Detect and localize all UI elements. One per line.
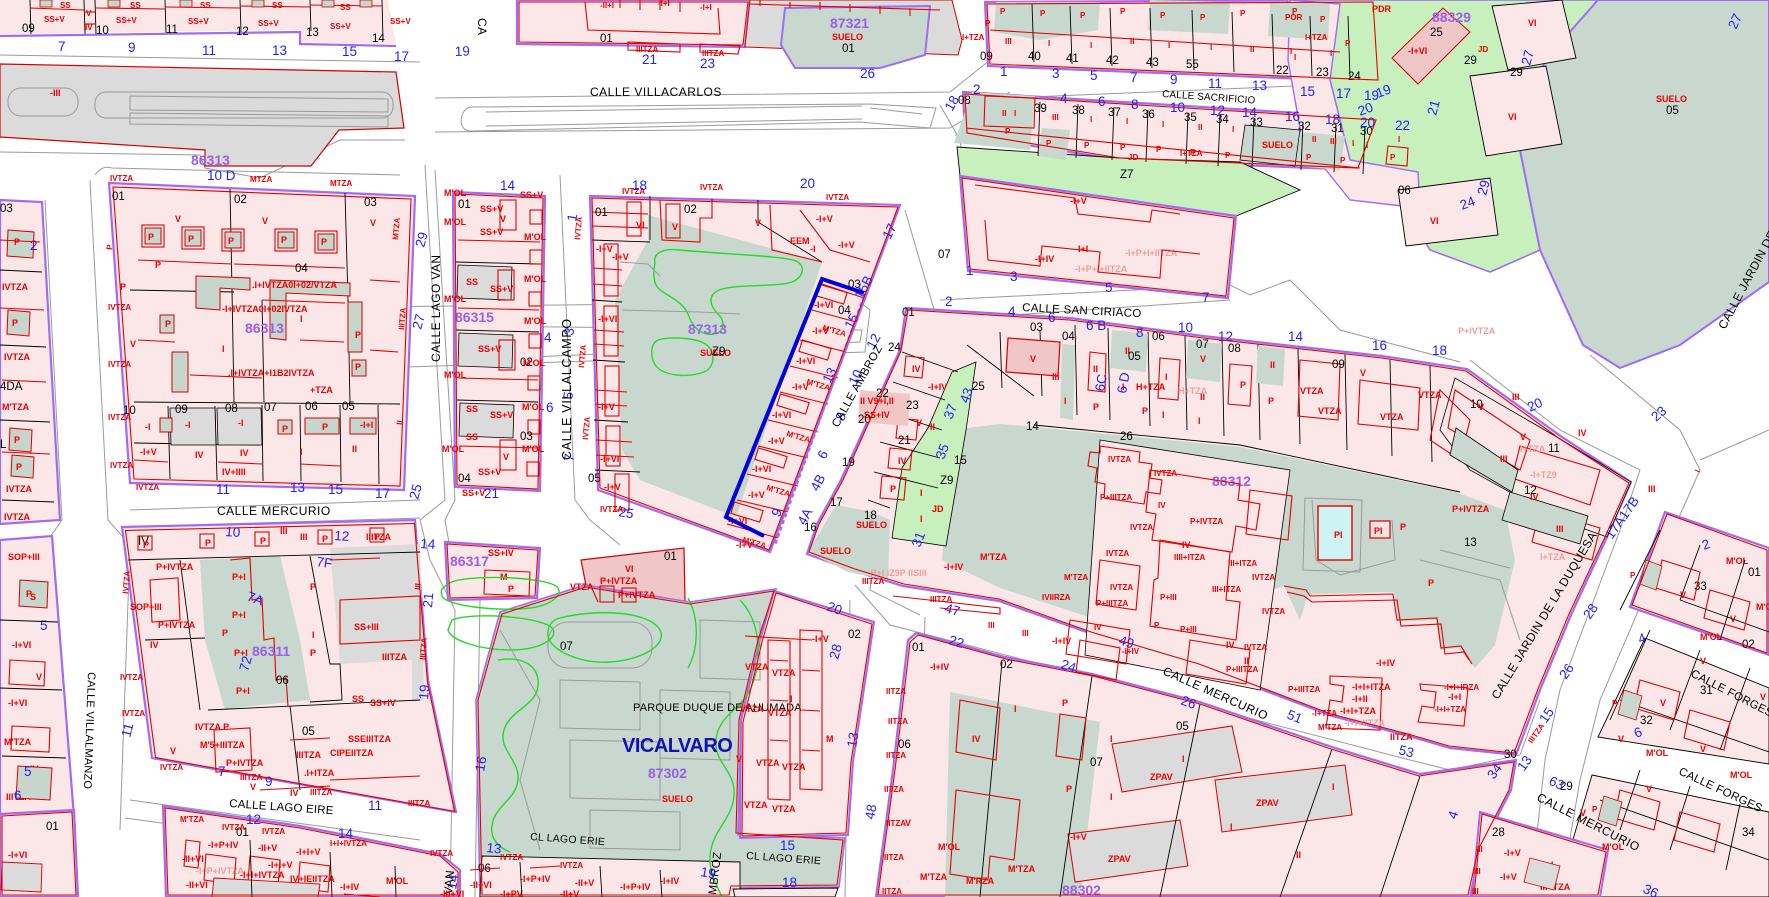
svg-text:V: V xyxy=(86,9,92,18)
svg-text:I: I xyxy=(1090,115,1092,124)
svg-text:IVTZA: IVTZA xyxy=(122,709,145,718)
svg-text:P: P xyxy=(355,330,361,340)
svg-text:13: 13 xyxy=(844,731,861,748)
svg-text:86313: 86313 xyxy=(191,152,230,168)
svg-text:IV: IV xyxy=(150,640,159,650)
svg-text:III: III xyxy=(1005,37,1012,46)
svg-text:-I+V: -I+V xyxy=(748,490,765,500)
svg-text:17: 17 xyxy=(1336,86,1351,101)
svg-text:IV: IV xyxy=(912,364,921,374)
svg-text:-I+V: -I+V xyxy=(816,214,833,224)
svg-text:IV: IV xyxy=(240,448,249,458)
svg-text:IITZA: IITZA xyxy=(884,785,904,794)
svg-text:P: P xyxy=(188,234,194,244)
svg-text:IVTZA: IVTZA xyxy=(430,849,453,858)
svg-text:II: II xyxy=(1198,123,1202,132)
svg-text:I: I xyxy=(1110,792,1113,802)
svg-text:03: 03 xyxy=(1030,322,1043,334)
svg-text:-I+VI: -I+VI xyxy=(752,464,771,474)
svg-text:6C: 6C xyxy=(1092,373,1110,393)
svg-text:P+III: P+III xyxy=(1180,625,1197,634)
svg-text:-I+VI: -I+VI xyxy=(814,300,833,310)
svg-text:SOP+III: SOP+III xyxy=(8,552,40,562)
svg-text:IV: IV xyxy=(1226,640,1235,650)
svg-text:I: I xyxy=(1398,135,1400,144)
svg-text:M'OL: M'OL xyxy=(524,316,547,326)
svg-text:06: 06 xyxy=(305,401,318,413)
svg-text:I: I xyxy=(1165,372,1168,382)
svg-text:13: 13 xyxy=(272,43,287,58)
svg-text:IV: IV xyxy=(972,734,981,744)
svg-text:M'TZA: M'TZA xyxy=(1008,864,1036,874)
svg-text:42: 42 xyxy=(1106,55,1119,67)
svg-text:P: P xyxy=(1066,784,1072,794)
svg-text:IVTZA: IVTZA xyxy=(1262,607,1285,616)
svg-text:87302: 87302 xyxy=(648,765,687,781)
svg-text:34: 34 xyxy=(1742,827,1755,839)
svg-text:I: I xyxy=(1290,47,1292,56)
svg-text:IV: IV xyxy=(85,23,93,32)
svg-text:6: 6 xyxy=(546,400,554,415)
svg-text:V: V xyxy=(736,754,742,764)
svg-text:-I+V: -I+V xyxy=(768,436,785,446)
svg-text:I: I xyxy=(1048,39,1050,48)
svg-text:M'TZA: M'TZA xyxy=(2,402,30,412)
svg-text:SS: SS xyxy=(340,3,351,12)
svg-text:V: V xyxy=(262,216,268,226)
svg-text:JD: JD xyxy=(1478,45,1488,54)
svg-text:02: 02 xyxy=(684,204,697,216)
svg-text:CALLE MERCURIO: CALLE MERCURIO xyxy=(217,504,331,518)
svg-text:I: I xyxy=(312,630,315,640)
svg-text:P: P xyxy=(1084,141,1090,150)
svg-text:P+IVTZA: P+IVTZA xyxy=(226,758,264,768)
svg-text:05: 05 xyxy=(588,473,601,485)
svg-text:CIPEIITZA: CIPEIITZA xyxy=(330,748,374,758)
svg-text:M'OL: M'OL xyxy=(444,370,467,380)
svg-text:IITZA: IITZA xyxy=(886,687,906,696)
svg-text:P: P xyxy=(143,540,149,550)
svg-text:Z9: Z9 xyxy=(940,475,953,487)
svg-text:-I+P+IV: -I+P+IV xyxy=(620,882,651,892)
svg-text:26: 26 xyxy=(1120,431,1133,443)
svg-text:9: 9 xyxy=(265,774,273,789)
svg-text:36: 36 xyxy=(1142,109,1155,121)
svg-text:15: 15 xyxy=(1300,84,1315,99)
svg-text:P: P xyxy=(321,237,327,247)
svg-text:-I+VI: -I+VI xyxy=(796,356,815,366)
svg-text:11: 11 xyxy=(1208,76,1222,91)
svg-text:I: I xyxy=(1198,416,1201,426)
svg-text:18: 18 xyxy=(632,178,647,193)
svg-text:V: V xyxy=(755,218,761,228)
svg-text:P+IIITZA: P+IIITZA xyxy=(1288,685,1320,694)
svg-text:SS+V: SS+V xyxy=(478,344,501,354)
svg-text:43: 43 xyxy=(1146,57,1159,69)
svg-text:07: 07 xyxy=(1090,757,1103,769)
svg-text:28: 28 xyxy=(1492,827,1505,839)
svg-text:P+IVTZA: P+IVTZA xyxy=(1190,517,1223,526)
svg-text:P: P xyxy=(322,534,328,544)
svg-text:M'OL: M'OL xyxy=(1646,748,1669,758)
svg-text:VTZA: VTZA xyxy=(772,668,796,678)
svg-text:I: I xyxy=(222,344,225,354)
svg-text:38: 38 xyxy=(1072,105,1085,117)
svg-text:V: V xyxy=(1618,734,1624,744)
svg-text:P: P xyxy=(1062,698,1068,708)
svg-text:19: 19 xyxy=(699,864,716,881)
svg-text:11: 11 xyxy=(368,798,382,813)
svg-text:P: P xyxy=(14,435,20,445)
svg-text:P+IVTZA: P+IVTZA xyxy=(600,576,638,586)
svg-text:SS+V: SS+V xyxy=(116,16,137,25)
svg-text:03: 03 xyxy=(520,431,533,443)
svg-text:I: I xyxy=(1330,49,1332,58)
svg-text:01: 01 xyxy=(902,307,915,319)
svg-text:-I+P+I+IITZA: -I+P+I+IITZA xyxy=(1125,248,1178,258)
svg-text:M'OL: M'OL xyxy=(1730,770,1753,780)
svg-text:V: V xyxy=(1646,784,1652,794)
svg-text:IV: IV xyxy=(290,788,299,798)
svg-text:03: 03 xyxy=(364,197,377,209)
svg-text:II: II xyxy=(1296,850,1301,860)
svg-text:IVTZA: IVTZA xyxy=(500,853,523,862)
svg-text:SS+V: SS+V xyxy=(520,190,543,200)
svg-text:87313: 87313 xyxy=(688,321,727,337)
svg-text:IIITZA: IIITZA xyxy=(702,49,724,58)
svg-text:P: P xyxy=(1200,13,1206,22)
svg-text:02: 02 xyxy=(848,629,861,641)
svg-text:CA: CA xyxy=(475,18,489,35)
svg-text:M'TZA: M'TZA xyxy=(1318,723,1342,732)
svg-text:P: P xyxy=(205,538,211,548)
svg-text:-I+IV: -I+IV xyxy=(944,562,963,572)
svg-text:I: I xyxy=(1332,782,1335,792)
svg-text:37: 37 xyxy=(1108,107,1121,119)
svg-text:05: 05 xyxy=(1666,105,1679,117)
svg-text:Z7: Z7 xyxy=(1120,169,1133,181)
svg-text:IV: IV xyxy=(1158,501,1166,510)
svg-text:M'OL: M'OL xyxy=(938,842,961,852)
svg-text:14: 14 xyxy=(1288,329,1304,344)
svg-text:7: 7 xyxy=(1202,290,1210,305)
svg-text:IITZA: IITZA xyxy=(884,853,904,862)
svg-text:P: P xyxy=(14,237,20,247)
svg-text:P: P xyxy=(120,282,126,292)
svg-text:I+TZA: I+TZA xyxy=(1305,33,1328,42)
svg-text:M'TZA: M'TZA xyxy=(4,737,32,747)
svg-text:VTZA: VTZA xyxy=(744,800,768,810)
svg-text:M'OL: M'OL xyxy=(386,876,409,886)
svg-text:CALLE LAGO VAN: CALLE LAGO VAN xyxy=(429,255,443,362)
svg-text:SS: SS xyxy=(466,432,478,442)
svg-text:JD: JD xyxy=(932,504,944,514)
svg-text:10: 10 xyxy=(96,25,109,37)
svg-text:II: II xyxy=(1312,135,1316,144)
svg-text:P: P xyxy=(1156,145,1162,154)
svg-text:III: III xyxy=(988,621,995,630)
svg-text:P: P xyxy=(1345,39,1351,48)
svg-text:III: III xyxy=(300,532,308,542)
svg-text:V: V xyxy=(1360,368,1366,378)
svg-text:22: 22 xyxy=(1276,65,1289,77)
svg-text:Z9: Z9 xyxy=(712,346,725,358)
svg-text:IV: IV xyxy=(1578,428,1587,438)
svg-text:-I: -I xyxy=(145,422,151,432)
svg-text:29: 29 xyxy=(1510,67,1523,79)
svg-text:12: 12 xyxy=(246,812,261,827)
svg-text:P: P xyxy=(281,235,287,245)
svg-text:07: 07 xyxy=(1196,339,1209,351)
svg-text:V: V xyxy=(905,818,911,828)
svg-text:ZPAV: ZPAV xyxy=(1150,772,1173,782)
svg-text:P: P xyxy=(222,628,228,638)
svg-text:11: 11 xyxy=(216,482,230,497)
svg-text:P: P xyxy=(1612,699,1618,708)
svg-text:V: V xyxy=(130,339,136,349)
svg-text:13: 13 xyxy=(290,480,305,495)
svg-text:24: 24 xyxy=(888,342,901,354)
svg-text:-I+I+ITZA: -I+I+ITZA xyxy=(1352,682,1391,692)
svg-text:II: II xyxy=(395,420,404,425)
svg-text:SSEIIITZA: SSEIIITZA xyxy=(348,734,392,744)
svg-text:IIII+ITZA: IIII+ITZA xyxy=(1174,553,1206,562)
svg-text:SS+V: SS+V xyxy=(480,227,503,237)
svg-text:VI: VI xyxy=(1528,18,1537,28)
svg-text:III: III xyxy=(413,583,423,590)
svg-text:-I+V: -I+V xyxy=(1504,848,1521,858)
svg-text:SS+V: SS+V xyxy=(188,17,209,26)
svg-text:-I+VI: -I+VI xyxy=(8,850,27,860)
svg-text:12: 12 xyxy=(1524,485,1537,497)
svg-text:15: 15 xyxy=(780,838,795,853)
svg-text:I: I xyxy=(1232,125,1234,134)
svg-text:I+TZA: I+TZA xyxy=(962,33,985,42)
svg-text:M'OL: M'OL xyxy=(523,358,546,368)
svg-text:-I+I: -I+I xyxy=(700,3,712,12)
svg-text:III: III xyxy=(1474,867,1481,876)
svg-text:-I+TZ9: -I+TZ9 xyxy=(1530,470,1557,480)
svg-text:VI: VI xyxy=(1508,112,1517,122)
svg-text:01: 01 xyxy=(1748,567,1761,579)
svg-text:I+TZA: I+TZA xyxy=(1180,149,1203,158)
svg-text:-III+VI: -III+VI xyxy=(440,889,464,897)
svg-text:87321: 87321 xyxy=(830,15,869,31)
svg-text:P+IIITZA: P+IIITZA xyxy=(1226,665,1258,674)
svg-text:M'OL: M'OL xyxy=(442,444,465,454)
svg-text:VTZA: VTZA xyxy=(740,704,764,714)
svg-text:I+TZA: I+TZA xyxy=(1520,444,1546,454)
svg-text:I: I xyxy=(1294,53,1296,62)
svg-text:07: 07 xyxy=(560,641,573,653)
svg-text:IVTZA: IVTZA xyxy=(222,823,245,832)
svg-text:SS+V: SS+V xyxy=(390,17,411,26)
svg-text:15: 15 xyxy=(342,44,357,59)
svg-text:-I+I+TZA: -I+I+TZA xyxy=(1340,706,1377,716)
svg-text:M'OL: M'OL xyxy=(1602,842,1625,852)
svg-text:-II+V: -II+V xyxy=(258,843,277,853)
svg-text:04: 04 xyxy=(295,263,308,275)
svg-text:IIITZA: IIITZA xyxy=(862,577,884,586)
svg-text:-I+IV: -I+IV xyxy=(1376,658,1395,668)
svg-text:P: P xyxy=(322,422,328,432)
svg-text:03: 03 xyxy=(0,203,13,215)
svg-text:SS+V: SS+V xyxy=(490,284,513,294)
svg-text:CALLE VILLACARLOS: CALLE VILLACARLOS xyxy=(590,85,722,99)
svg-text:05: 05 xyxy=(1176,721,1189,733)
svg-text:IVTZA: IVTZA xyxy=(1106,549,1129,558)
svg-text:-I+IV: -I+IV xyxy=(928,382,947,392)
svg-text:SS+IV: SS+IV xyxy=(488,548,514,558)
svg-text:-I+I+IRZA: -I+I+IRZA xyxy=(1444,683,1479,692)
svg-text:I: I xyxy=(1110,734,1113,744)
svg-text:P: P xyxy=(508,584,514,594)
svg-text:10: 10 xyxy=(1178,320,1193,335)
svg-text:-I+VI: -I+VI xyxy=(8,698,27,708)
svg-text:13: 13 xyxy=(1252,78,1267,93)
svg-text:II: II xyxy=(352,444,357,454)
svg-text:P: P xyxy=(148,232,154,242)
svg-text:SUELO: SUELO xyxy=(1656,94,1687,104)
svg-text:08: 08 xyxy=(958,95,971,107)
svg-text:-II+V: -II+V xyxy=(560,889,579,897)
svg-text:I: I xyxy=(1182,754,1185,764)
svg-text:6: 6 xyxy=(14,788,22,803)
svg-text:V: V xyxy=(175,214,181,224)
svg-text:EEM: EEM xyxy=(790,236,810,246)
svg-text:48: 48 xyxy=(862,803,879,820)
svg-text:I: I xyxy=(300,447,303,457)
svg-text:P: P xyxy=(1000,7,1006,16)
svg-text:8: 8 xyxy=(1136,325,1144,340)
svg-text:VTZA: VTZA xyxy=(1318,406,1342,416)
svg-text:V: V xyxy=(1660,698,1666,708)
svg-text:I: I xyxy=(790,694,793,704)
svg-text:32: 32 xyxy=(1640,715,1653,727)
svg-text:IVTZA: IVTZA xyxy=(108,360,131,369)
svg-text:L: L xyxy=(0,439,7,451)
svg-text:IV: IV xyxy=(1182,540,1191,550)
svg-text:14: 14 xyxy=(420,536,437,552)
svg-text:9: 9 xyxy=(1170,72,1178,87)
svg-text:M'TZA: M'TZA xyxy=(180,815,204,824)
svg-text:-I+V: -I+V xyxy=(598,402,615,412)
svg-text:IIITZA: IIITZA xyxy=(636,45,658,54)
svg-text:4DA: 4DA xyxy=(0,381,23,393)
svg-text:86311: 86311 xyxy=(252,643,290,659)
svg-text:-I+VI: -I+VI xyxy=(1408,46,1427,56)
svg-text:-I: -I xyxy=(185,420,191,430)
svg-text:5: 5 xyxy=(24,764,32,779)
svg-text:VI: VI xyxy=(1430,216,1439,226)
svg-text:I: I xyxy=(1126,117,1128,126)
svg-text:02: 02 xyxy=(234,194,247,206)
svg-text:III: III xyxy=(1648,484,1656,494)
svg-text:13: 13 xyxy=(306,27,319,39)
svg-text:18: 18 xyxy=(1325,112,1340,127)
svg-text:-I+I+V: -I+I+V xyxy=(296,847,321,857)
svg-text:IVTZA: IVTZA xyxy=(108,303,131,312)
svg-text:55: 55 xyxy=(1186,59,1199,71)
svg-text:-I+I: -I+I xyxy=(360,420,373,430)
svg-text:-I+V: -I+V xyxy=(612,252,629,262)
svg-text:21: 21 xyxy=(642,52,657,67)
svg-text:V: V xyxy=(503,452,509,462)
svg-text:VI: VI xyxy=(636,220,645,230)
svg-text:6: 6 xyxy=(1098,94,1106,109)
svg-text:V: V xyxy=(1580,808,1586,818)
svg-text:01: 01 xyxy=(842,43,855,55)
svg-text:21: 21 xyxy=(898,435,911,447)
svg-text:15: 15 xyxy=(954,455,967,467)
svg-text:14: 14 xyxy=(372,33,385,45)
svg-text:IV: IV xyxy=(195,450,204,460)
svg-text:09: 09 xyxy=(175,404,188,416)
svg-text:18: 18 xyxy=(782,875,797,890)
svg-text:SS: SS xyxy=(466,277,478,287)
svg-text:M'TZA: M'TZA xyxy=(920,872,948,882)
svg-text:11: 11 xyxy=(166,24,178,36)
svg-text:P: P xyxy=(1120,143,1126,152)
svg-text:86317: 86317 xyxy=(450,553,489,569)
svg-text:V: V xyxy=(1700,656,1706,666)
svg-text:III: III xyxy=(1556,524,1564,534)
svg-text:P: P xyxy=(1592,805,1598,814)
svg-text:01: 01 xyxy=(912,642,925,654)
svg-text:I: I xyxy=(1352,139,1354,148)
svg-text:88329: 88329 xyxy=(1432,9,1471,25)
svg-text:IITZA: IITZA xyxy=(888,717,908,726)
svg-text:25: 25 xyxy=(1430,27,1443,39)
svg-text:07: 07 xyxy=(264,402,277,414)
svg-text:P: P xyxy=(1240,9,1246,18)
svg-text:14: 14 xyxy=(500,178,516,193)
svg-text:IITZA: IITZA xyxy=(1390,732,1413,742)
svg-text:I: I xyxy=(1168,41,1170,50)
svg-text:11: 11 xyxy=(202,43,216,58)
svg-text:3: 3 xyxy=(1010,269,1018,284)
svg-text:16: 16 xyxy=(804,522,817,534)
svg-text:-I+P+IV: -I+P+IV xyxy=(520,874,551,884)
svg-text:9: 9 xyxy=(128,40,136,55)
svg-text:H+TZA: H+TZA xyxy=(1136,382,1166,392)
svg-text:09: 09 xyxy=(1332,359,1345,371)
svg-text:SS+III: SS+III xyxy=(354,622,379,632)
svg-text:06: 06 xyxy=(276,675,289,687)
svg-text:-I+II: -I+II xyxy=(1352,694,1368,704)
svg-text:IV+IIII: IV+IIII xyxy=(222,467,246,477)
svg-text:SUELO: SUELO xyxy=(1262,140,1293,150)
svg-text:IVTZA: IVTZA xyxy=(1130,523,1153,532)
svg-text:-I+IV: -I+IV xyxy=(1052,636,1071,646)
svg-text:P: P xyxy=(1142,406,1148,416)
svg-text:P: P xyxy=(282,424,288,434)
svg-text:P: P xyxy=(1390,153,1396,162)
svg-text:SS: SS xyxy=(466,404,478,414)
svg-text:SUELO: SUELO xyxy=(832,32,863,42)
svg-text:22: 22 xyxy=(1395,118,1410,133)
svg-text:II: II xyxy=(1130,37,1134,46)
svg-text:MTZA: MTZA xyxy=(250,175,272,184)
svg-text:26: 26 xyxy=(860,66,875,81)
svg-text:18: 18 xyxy=(1432,343,1447,358)
svg-text:SS: SS xyxy=(272,1,283,10)
svg-text:.I+ITZA: .I+ITZA xyxy=(304,768,335,778)
svg-text:P: P xyxy=(228,236,234,246)
svg-text:M'OL: M'OL xyxy=(1726,556,1749,566)
svg-text:P+IVTZA: P+IVTZA xyxy=(1458,326,1496,336)
svg-text:-I+V: -I+V xyxy=(596,244,613,254)
